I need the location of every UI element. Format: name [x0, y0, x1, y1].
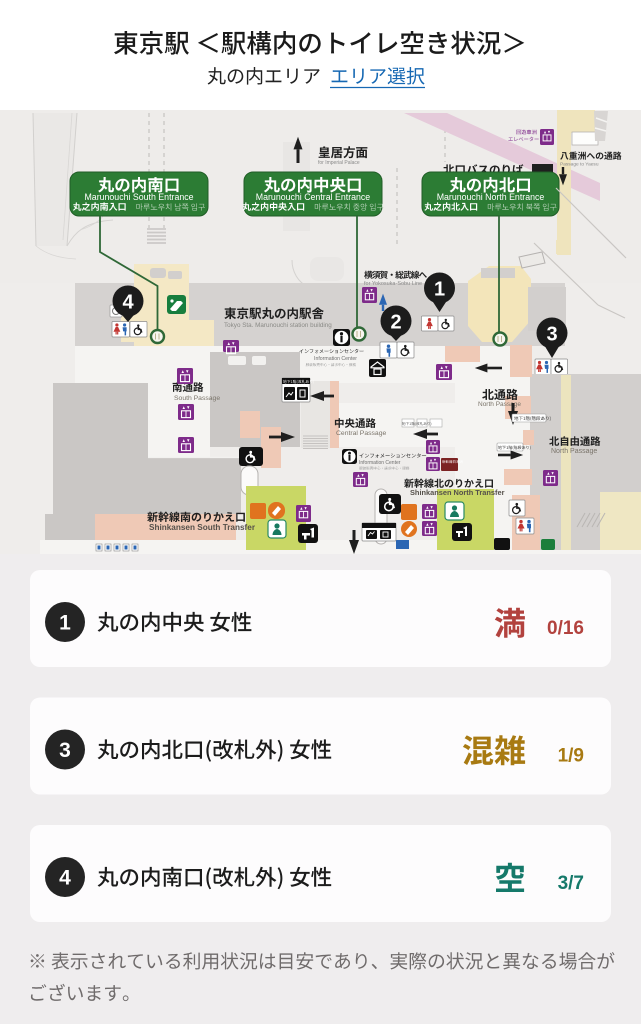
- svg-text:Information Center: Information Center: [359, 460, 401, 466]
- svg-text:Central Passage: Central Passage: [336, 430, 386, 437]
- svg-text:South Passage: South Passage: [174, 395, 220, 402]
- svg-text:for Yokosuka·Sobu Line: for Yokosuka·Sobu Line: [364, 281, 422, 287]
- svg-text:North Passage: North Passage: [478, 401, 521, 408]
- svg-text:Marunouchi Central Entrance: Marunouchi Central Entrance: [256, 192, 371, 202]
- svg-text:Tokyo Sta. Marunouchi station: Tokyo Sta. Marunouchi station building: [224, 322, 332, 329]
- svg-text:Shinkansen South Transfer: Shinkansen South Transfer: [149, 523, 256, 532]
- svg-text:Passage to Yaesu: Passage to Yaesu: [560, 162, 599, 168]
- svg-text:0/16: 0/16: [547, 618, 584, 639]
- svg-text:Information Center: Information Center: [314, 356, 357, 362]
- svg-text:Marunouchi South Entrance: Marunouchi South Entrance: [84, 192, 193, 202]
- svg-text:Marunouchi North Entrance: Marunouchi North Entrance: [437, 192, 545, 202]
- svg-text:3/7: 3/7: [558, 873, 584, 894]
- svg-text:2: 2: [390, 311, 401, 333]
- svg-text:Shinkansen North Transfer: Shinkansen North Transfer: [410, 488, 505, 497]
- svg-text:1: 1: [59, 612, 71, 635]
- svg-text:3: 3: [546, 323, 557, 345]
- svg-text:for Imperial Palace: for Imperial Palace: [318, 160, 360, 166]
- svg-text:3: 3: [59, 739, 71, 762]
- svg-text:4: 4: [122, 291, 134, 313]
- svg-text:North Passage: North Passage: [551, 448, 597, 455]
- svg-text:4: 4: [59, 867, 71, 890]
- svg-text:1: 1: [434, 278, 445, 300]
- svg-text:1/9: 1/9: [558, 746, 584, 767]
